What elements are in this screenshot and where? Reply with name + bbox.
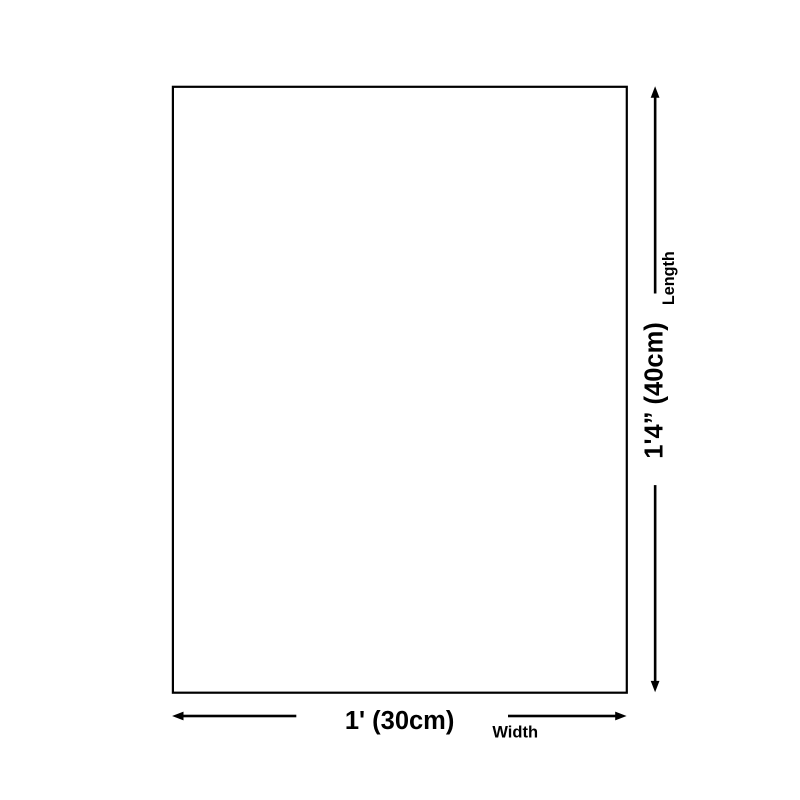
- svg-text:1' (30cm): 1' (30cm): [345, 707, 455, 735]
- svg-text:1'4” (40cm): 1'4” (40cm): [640, 322, 668, 458]
- svg-text:Width: Width: [492, 724, 538, 742]
- svg-text:Length: Length: [660, 251, 678, 305]
